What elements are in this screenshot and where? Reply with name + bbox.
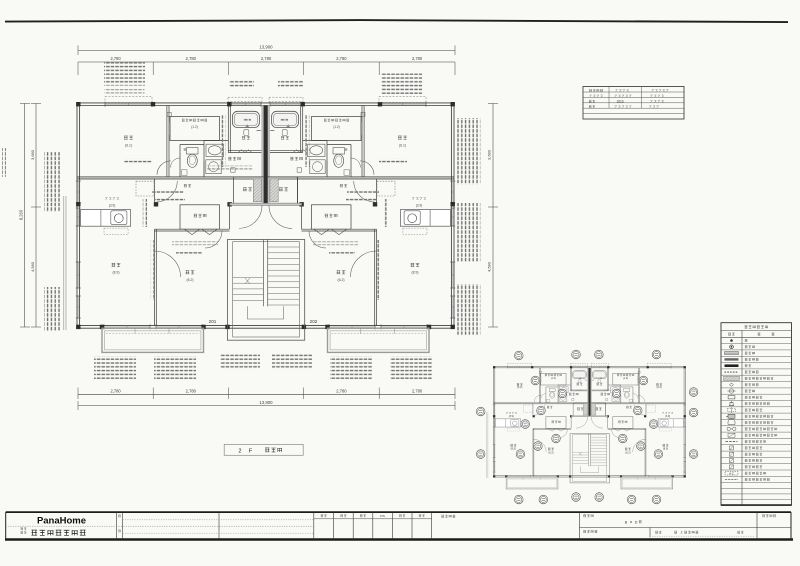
svg-text:(8.5): (8.5) — [663, 447, 668, 451]
svg-text:202: 202 — [310, 319, 318, 324]
svg-text:B: B — [625, 520, 628, 524]
svg-text:3,680: 3,680 — [30, 149, 35, 160]
svg-text:(3.9): (3.9) — [416, 203, 423, 207]
svg-text:4,580: 4,580 — [30, 261, 35, 272]
svg-text:(6.1): (6.1) — [125, 144, 132, 148]
svg-text:(1.2): (1.2) — [333, 125, 340, 129]
svg-text:(3.9): (3.9) — [665, 415, 670, 418]
svg-text:(6.2): (6.2) — [657, 385, 662, 389]
svg-text:(6.1): (6.1) — [399, 144, 406, 148]
svg-text:(1.2): (1.2) — [191, 125, 198, 129]
svg-text:4,580: 4,580 — [487, 261, 492, 272]
svg-text:3,680: 3,680 — [487, 149, 492, 160]
svg-text:201: 201 — [209, 319, 217, 324]
svg-text:(6.2): (6.2) — [517, 385, 522, 389]
svg-text:(1.2): (1.2) — [623, 377, 628, 380]
svg-text:F: F — [249, 448, 253, 454]
svg-text:A C: A C — [729, 472, 735, 476]
svg-text:2,780: 2,780 — [336, 389, 347, 394]
svg-text:(6.2): (6.2) — [548, 450, 553, 454]
svg-text:2,780: 2,780 — [412, 389, 423, 394]
svg-text:2,780: 2,780 — [261, 56, 272, 61]
svg-text:2,780: 2,780 — [186, 56, 197, 61]
svg-text:2: 2 — [681, 530, 683, 534]
svg-text:2,780: 2,780 — [110, 389, 121, 394]
svg-text:13,900: 13,900 — [259, 400, 273, 405]
svg-text:(6.2): (6.2) — [187, 278, 194, 282]
svg-text:2: 2 — [238, 448, 241, 454]
svg-text:PanaHome: PanaHome — [37, 516, 86, 527]
svg-text:2,780: 2,780 — [336, 56, 347, 61]
svg-text:(3.9): (3.9) — [109, 203, 116, 207]
svg-text:2,780: 2,780 — [186, 389, 197, 394]
svg-text:(3.9): (3.9) — [509, 415, 514, 418]
svg-text:(1.2): (1.2) — [551, 377, 556, 380]
svg-text:2,780: 2,780 — [412, 56, 423, 61]
svg-text:(8.5): (8.5) — [511, 447, 516, 451]
svg-text:1616: 1616 — [616, 99, 623, 103]
svg-text:8,260: 8,260 — [19, 209, 24, 220]
svg-text:(6.2): (6.2) — [625, 450, 630, 454]
svg-text:F/S: F/S — [380, 514, 385, 518]
svg-text:(8.9): (8.9) — [113, 271, 120, 275]
svg-text:(8.9): (8.9) — [412, 271, 419, 275]
svg-text:13,900: 13,900 — [259, 45, 273, 50]
svg-text:(6.2): (6.2) — [338, 278, 345, 282]
svg-text:D: D — [635, 520, 638, 524]
svg-text:2,780: 2,780 — [110, 56, 121, 61]
